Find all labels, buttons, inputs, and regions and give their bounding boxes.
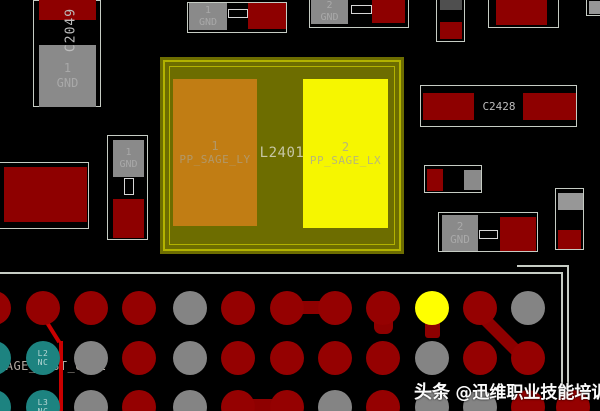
net-label: GND [450, 233, 470, 246]
bga-ball[interactable] [221, 291, 255, 325]
bga-ball[interactable]: L3NC [26, 390, 60, 411]
component-left-vert: 1 GND [107, 135, 148, 240]
bga-ball[interactable] [173, 390, 207, 411]
bga-ball[interactable] [0, 390, 11, 411]
bga-ball[interactable] [270, 291, 304, 325]
small-right-pad2[interactable] [464, 170, 481, 190]
pin-number: 2 [326, 0, 332, 12]
bga-ball[interactable] [122, 390, 156, 411]
pin-number: 1 [125, 147, 131, 159]
cap1-pad2[interactable] [248, 3, 286, 29]
right-vert-pad2[interactable] [558, 230, 581, 249]
component-c2049: 1 GND C2049 [33, 0, 101, 107]
cap1-pad1-gnd[interactable]: 1 GND [189, 3, 227, 30]
bga-ball[interactable] [463, 291, 497, 325]
c2428-pad1[interactable] [423, 93, 474, 120]
component-right-vert [555, 188, 584, 250]
pin-number: 1 [64, 61, 71, 76]
l2401-pad1[interactable]: 1 PP_SAGE_LY [173, 79, 257, 226]
board-outline-step [517, 265, 569, 267]
right-gnd-pad1[interactable] [500, 217, 536, 251]
bga-ball[interactable] [221, 390, 255, 411]
c2049-pad1-gnd[interactable]: 1 GND [39, 45, 96, 107]
net-label: GND [57, 76, 79, 91]
vert-cap-pad2[interactable] [440, 22, 462, 39]
bga-ball[interactable] [318, 390, 352, 411]
bga-ball[interactable]: L2NC [26, 341, 60, 375]
right-gnd-body-outline [479, 230, 498, 239]
right-gnd-pad2[interactable]: 2 GND [442, 215, 478, 251]
component-small-right [424, 165, 482, 193]
ball-net-label: NC [38, 407, 49, 411]
bga-ball[interactable] [511, 291, 545, 325]
bga-ball[interactable] [270, 341, 304, 375]
cap2-body-outline [351, 5, 372, 14]
bga-ball[interactable] [122, 341, 156, 375]
pin-number: 1 [211, 139, 218, 153]
bga-ball[interactable] [318, 341, 352, 375]
bga-ball[interactable] [366, 341, 400, 375]
cap1-body-outline [228, 9, 248, 18]
pin-number: 2 [457, 220, 464, 233]
component-right-gnd: 2 GND [438, 212, 538, 252]
watermark-brand: 头条 [414, 382, 450, 403]
pin-number: 1 [205, 5, 211, 17]
left-vert-pad2[interactable] [113, 199, 144, 238]
net-label: GND [320, 12, 338, 24]
component-vbst: 2 SAGE_VBST_OUTL [0, 162, 89, 229]
refdes-c2428: C2428 [474, 100, 524, 113]
bga-ball[interactable] [74, 390, 108, 411]
net-label: GND [199, 17, 217, 29]
bga-ball[interactable] [173, 291, 207, 325]
bga-ball[interactable] [0, 291, 11, 325]
top-right-red-pad[interactable] [496, 0, 547, 25]
net-label: PP_SAGE_LY [179, 153, 250, 167]
l2401-pad2[interactable]: 2 PP_SAGE_LX [303, 79, 388, 228]
watermark: 头条 @迅维职业技能培训 [414, 378, 600, 404]
vbst-pad2[interactable] [4, 167, 87, 222]
bga-ball[interactable] [463, 341, 497, 375]
corner-gray-pad[interactable] [589, 1, 600, 14]
component-top-right-pad [488, 0, 559, 28]
small-right-pad1[interactable] [427, 169, 443, 191]
component-c2428: C2428 [420, 85, 577, 127]
ball-net-label: L3 [38, 398, 49, 407]
net-label: GND [119, 159, 137, 171]
bga-ball[interactable] [366, 390, 400, 411]
right-vert-pad1[interactable] [558, 193, 583, 210]
component-top-cap2: 2 GND [309, 0, 409, 28]
refdes-l2401: L2401 [255, 145, 309, 161]
component-top-vert-cap [436, 0, 465, 42]
vert-cap-pad1[interactable] [440, 0, 462, 10]
bga-ball[interactable] [270, 390, 304, 411]
bga-ball[interactable] [122, 291, 156, 325]
net-label: PP_SAGE_LX [310, 154, 381, 168]
component-top-cap1: 1 GND [187, 2, 287, 33]
left-vert-body-outline [124, 178, 134, 195]
bga-ball[interactable] [415, 341, 449, 375]
bga-ball[interactable] [318, 291, 352, 325]
watermark-handle: @迅维职业技能培训 [455, 383, 600, 403]
cap2-pad2-gnd[interactable]: 2 GND [311, 0, 348, 24]
bga-ball[interactable] [26, 291, 60, 325]
bga-trace [59, 341, 63, 411]
ball-net-label: L2 [38, 349, 49, 358]
c2428-pad2[interactable] [523, 93, 576, 120]
bga-ball[interactable] [74, 291, 108, 325]
board-outline-horizontal [0, 272, 562, 274]
component-corner-gray-pad [586, 0, 600, 16]
bga-ball[interactable] [511, 341, 545, 375]
pcb-viewer-canvas: 1 GND C2049 1 GND 2 GND [0, 0, 600, 411]
bga-ball[interactable] [173, 341, 207, 375]
bga-ball[interactable] [366, 291, 400, 325]
bga-ball[interactable] [74, 341, 108, 375]
bga-ball[interactable] [221, 341, 255, 375]
refdes-c2049: C2049 [64, 8, 79, 52]
component-l2401: 1 PP_SAGE_LY 2 PP_SAGE_LX L2401 [160, 57, 404, 254]
left-vert-pad1-gnd[interactable]: 1 GND [113, 140, 144, 177]
pin-number: 2 [342, 140, 349, 154]
cap2-pad1[interactable] [372, 0, 405, 23]
ball-net-label: NC [38, 358, 49, 367]
bga-ball[interactable] [415, 291, 449, 325]
